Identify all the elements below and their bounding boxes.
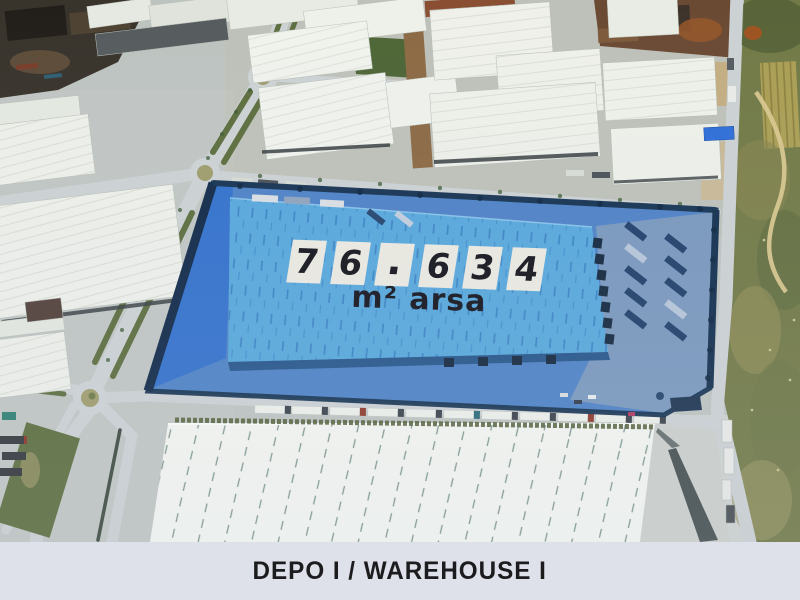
caption-bar: DEPO I / WAREHOUSE I xyxy=(0,542,800,600)
listing-image: 7 6 . 6 3 4 m² arsa xyxy=(0,0,800,600)
caption-label: DEPO I / WAREHOUSE I xyxy=(253,557,547,586)
atmosphere-haze xyxy=(0,0,800,542)
aerial-photo: 7 6 . 6 3 4 m² arsa xyxy=(0,0,800,542)
